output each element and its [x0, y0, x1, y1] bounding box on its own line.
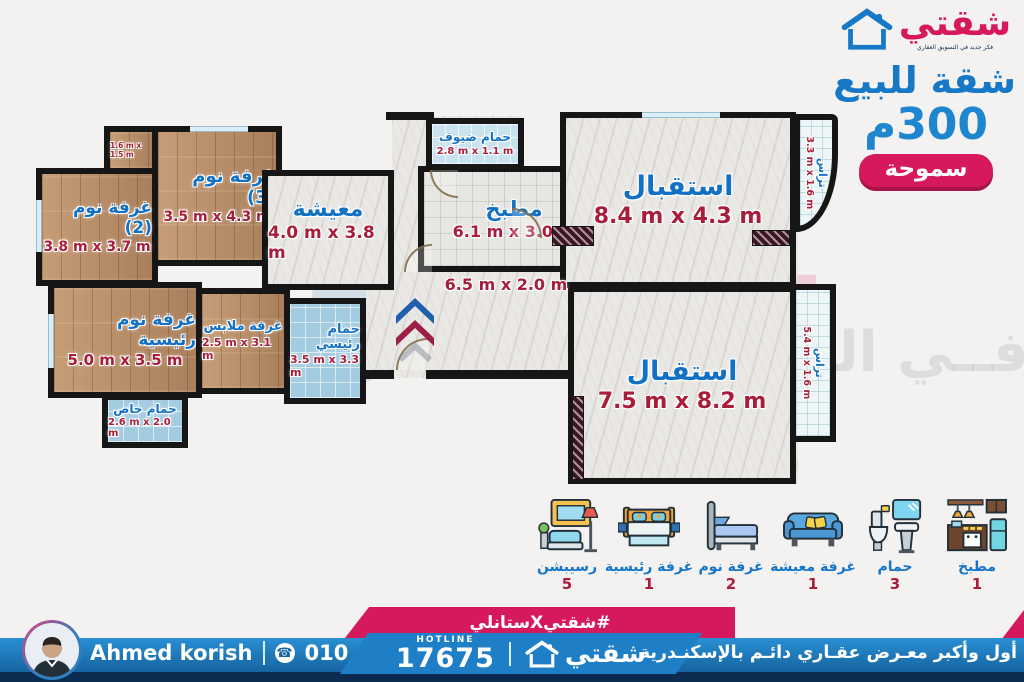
agent-avatar — [22, 620, 82, 680]
legend-item-reception: رسيبشن 5 — [526, 494, 608, 593]
wall-segment — [426, 370, 578, 379]
brand-logo-tagline: فكر جديد في التسويق العقاري — [899, 44, 1011, 51]
legend-item-bedroom: غرفة نوم 2 — [690, 494, 772, 593]
brand-house-icon — [841, 7, 893, 51]
room-closet-niche: 1.6 m x 1.5 m — [104, 126, 158, 174]
room-legend: رسيبشن 5 غرفة رئيسية 1 غرفة نوم 2 — [526, 494, 1020, 593]
room-living: معيشة 4.0 m x 3.8 m — [262, 170, 394, 290]
legend-item-living-room: غرفة معيشة 1 — [772, 494, 854, 593]
living-sofa-icon — [782, 498, 844, 556]
legend-label: رسيبشن — [537, 559, 597, 575]
wall-column-hatch — [572, 396, 584, 480]
room-guest-bathroom: حمام ضيوف 2.8 m x 1.1 m — [426, 118, 524, 170]
listing-area: 300م — [836, 102, 1016, 148]
agent-name: Ahmed korish — [90, 641, 253, 665]
legend-count: 1 — [808, 575, 818, 593]
divider — [509, 642, 511, 666]
room-terrace-top: تراس 3.3 m x 1.6 m — [794, 114, 838, 232]
legend-count: 2 — [726, 575, 736, 593]
wall-column-hatch — [552, 226, 594, 246]
legend-label: غرفة معيشة — [770, 559, 856, 575]
legend-label: مطبخ — [958, 559, 996, 575]
kitchen-icon — [946, 498, 1008, 556]
room-main-bathroom: حمام رئيسي 3.5 m x 3.3 m — [284, 298, 366, 404]
legend-count: 1 — [972, 575, 982, 593]
legend-count: 5 — [562, 575, 572, 593]
legend-item-kitchen: مطبخ 1 — [936, 494, 1018, 593]
window — [642, 112, 720, 118]
agent-avatar-image — [29, 633, 75, 677]
legend-count: 1 — [644, 575, 654, 593]
corridor-dimension-label: 6.5 m x 2.0 m — [428, 272, 584, 296]
room-master-bedroom: غرفة نوم رئيسية 5.0 m x 3.5 m — [48, 282, 202, 398]
room-reception-2: استقبال 7.5 m x 8.2 m — [568, 286, 796, 484]
room-dressing: غرفة ملابس 2.5 m x 3.1 m — [196, 288, 290, 394]
hotline-number: 17675 — [396, 645, 495, 672]
legend-item-bathroom: حمام 3 — [854, 494, 936, 593]
brand-logo: شقتي فكر جديد في التسويق العقاري — [836, 6, 1016, 51]
footer-brand-text: شقتي — [565, 639, 646, 669]
location-badge: سموحة — [859, 154, 994, 187]
hotline-block: HOTLINE 17675 — [396, 636, 495, 672]
phone-icon: ☎ — [275, 643, 295, 663]
reception-icon — [536, 498, 598, 556]
window — [36, 200, 42, 252]
legend-label: حمام — [878, 559, 913, 575]
footer-brand-logo: شقتي — [525, 639, 646, 669]
room-terrace-side: تراس 5.4 m x 1.6 m — [790, 284, 836, 442]
side-panel: شقتي فكر جديد في التسويق العقاري شقة للب… — [836, 6, 1016, 187]
legend-label: غرفة نوم — [698, 559, 763, 575]
divider — [263, 641, 265, 665]
window — [190, 126, 248, 132]
bathroom-icon — [866, 498, 924, 556]
legend-item-master-bedroom: غرفة رئيسية 1 — [608, 494, 690, 593]
brand-logo-text: شقتي — [899, 6, 1011, 42]
wall-column-hatch — [752, 230, 790, 246]
legend-count: 3 — [890, 575, 900, 593]
listing-title: شقة للبيع — [836, 59, 1016, 102]
single-bed-icon — [700, 498, 762, 556]
master-bed-icon — [618, 498, 680, 556]
footer-tagline: أول وأكبر معـرض عقـاري دائـم بالإسكنـدري… — [702, 643, 1017, 663]
wall-segment — [364, 370, 394, 379]
window — [48, 314, 54, 368]
footer-house-icon — [525, 639, 559, 669]
legend-label: غرفة رئيسية — [605, 559, 693, 575]
room-bedroom-2: غرفة نوم (2) 3.8 m x 3.7 m — [36, 168, 158, 286]
room-private-bathroom: حمام خاص 2.6 m x 2.0 m — [102, 394, 188, 448]
entrance-arrow-icon — [392, 296, 438, 362]
room-reception-1: استقبال 8.4 m x 4.3 m — [560, 112, 796, 288]
